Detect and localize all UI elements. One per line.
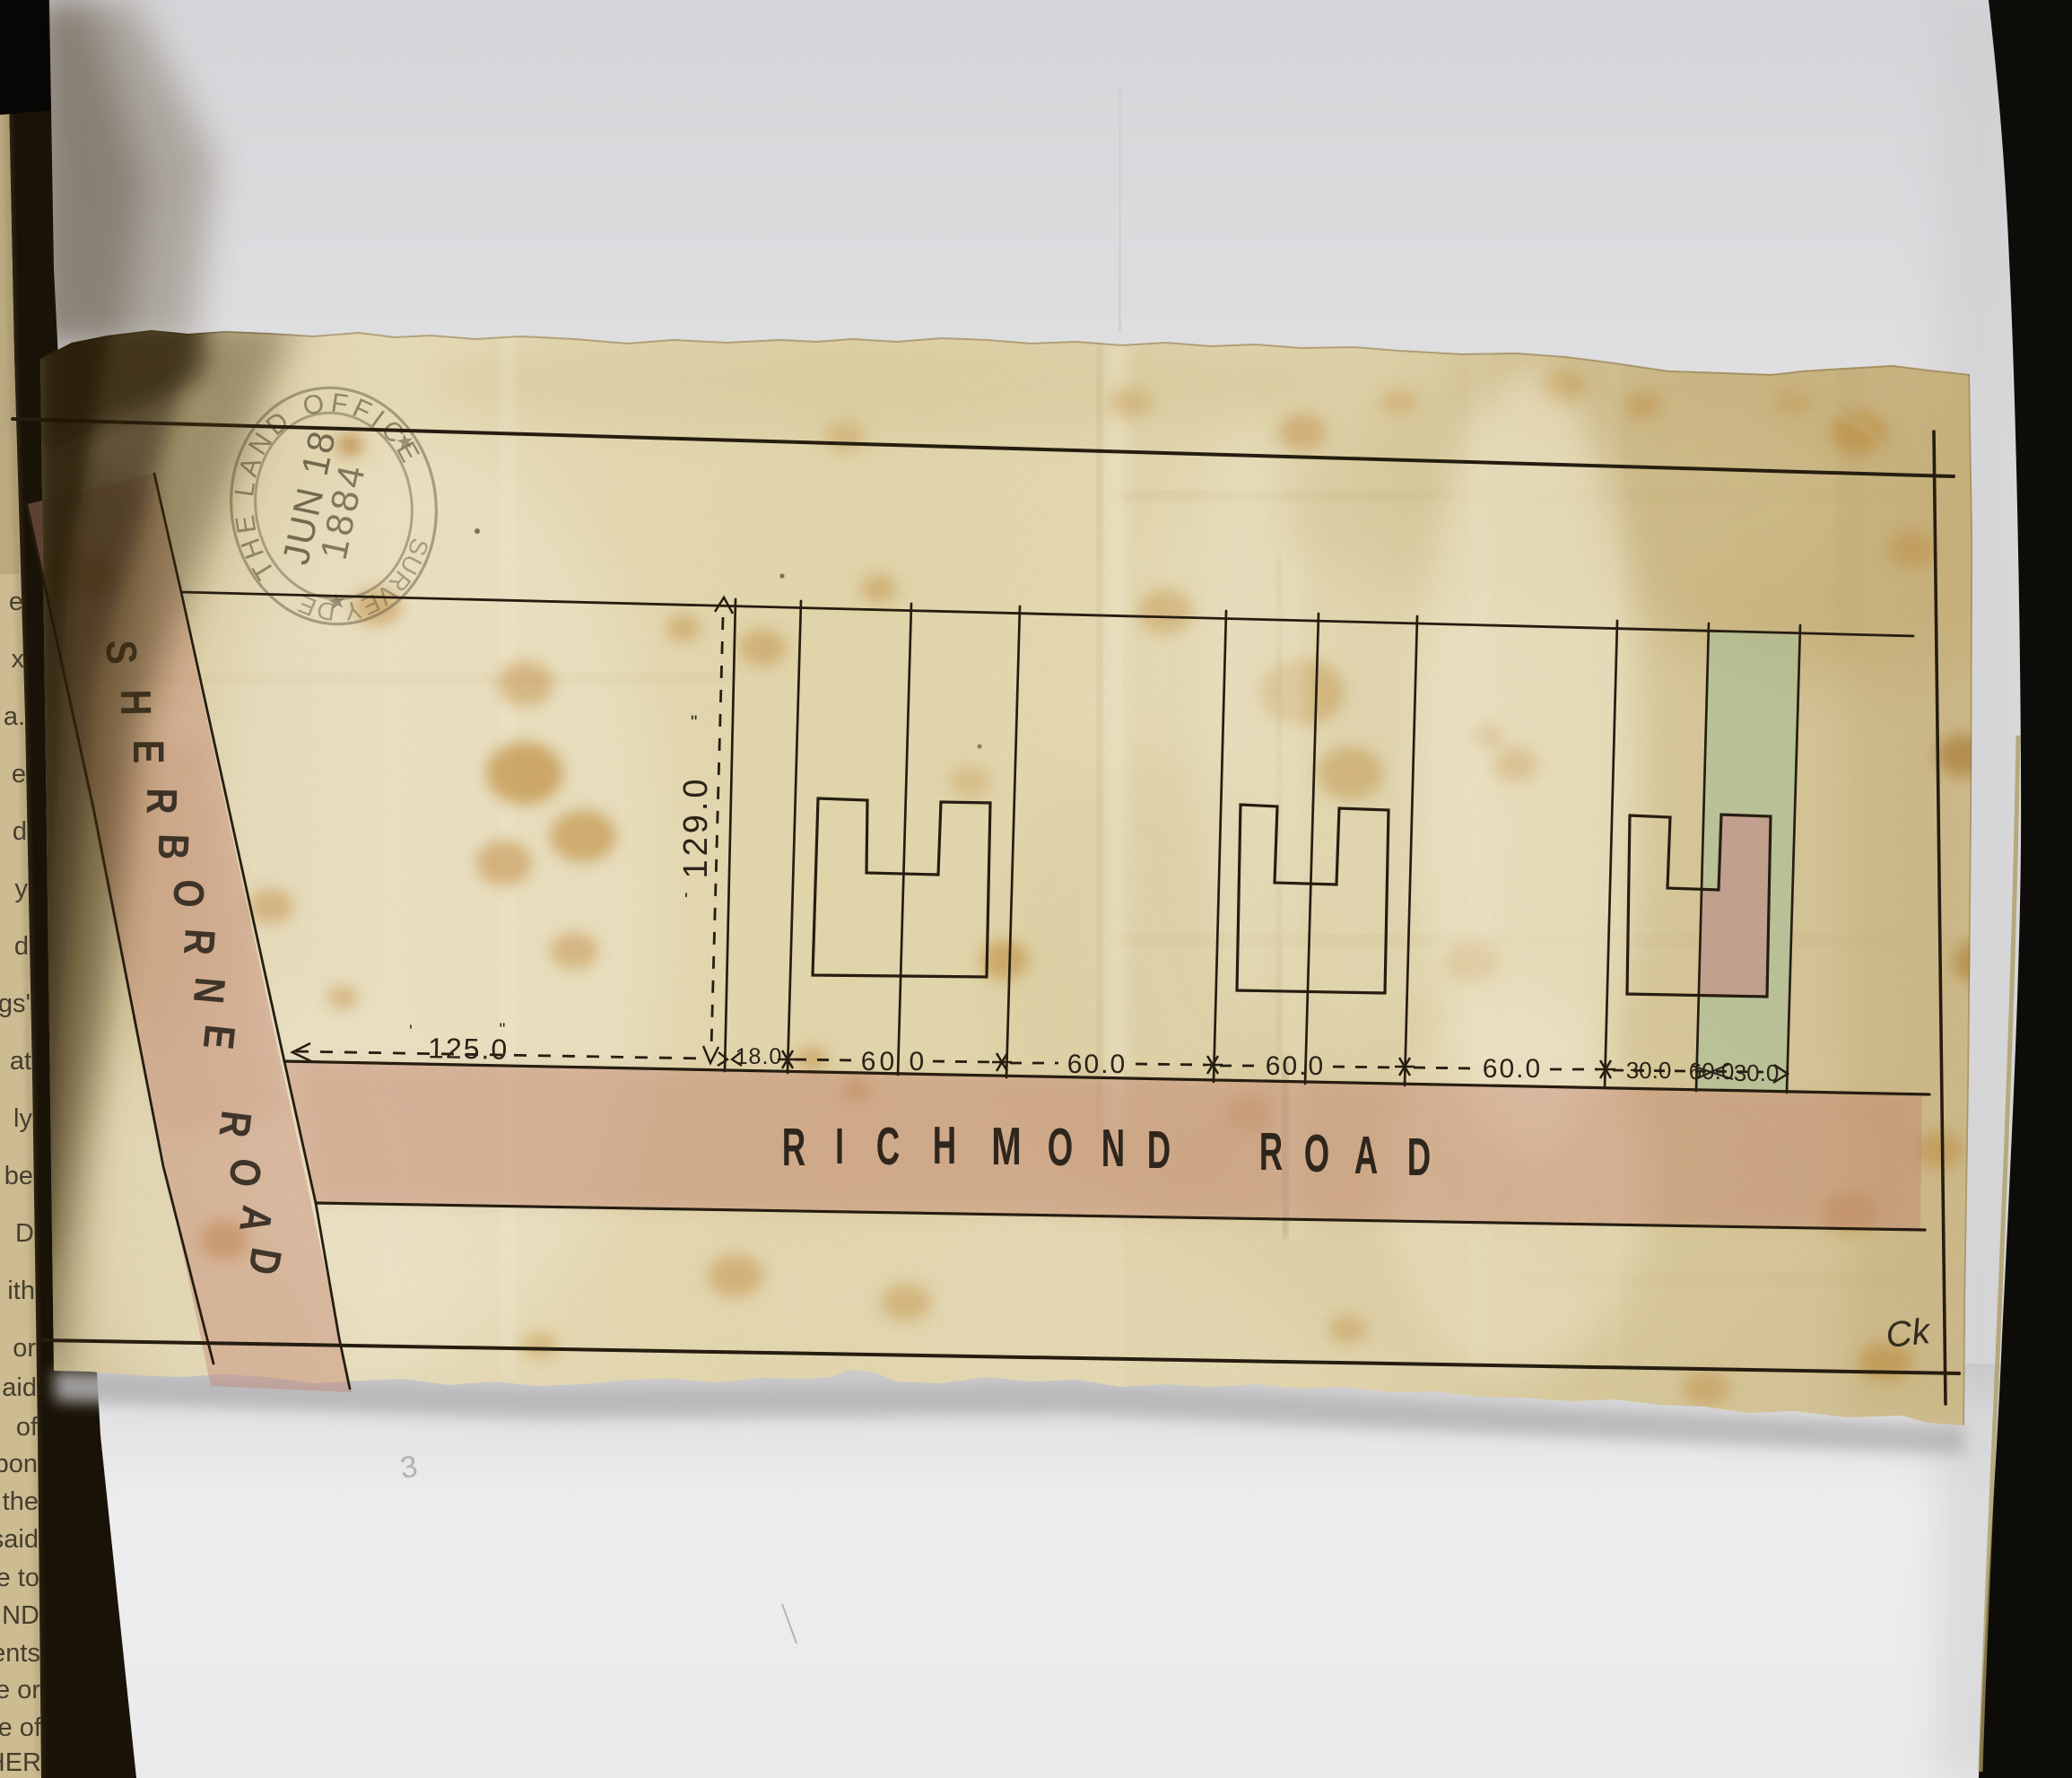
svg-text:O: O bbox=[1048, 1119, 1073, 1177]
svg-text:d: d bbox=[14, 932, 29, 961]
svg-text:the: the bbox=[3, 1487, 39, 1516]
svg-text:": " bbox=[500, 1021, 506, 1040]
svg-text:N: N bbox=[184, 975, 233, 1006]
svg-text:ith: ith bbox=[7, 1277, 35, 1305]
svg-text:60.0: 60.0 bbox=[1067, 1050, 1127, 1079]
svg-text:R: R bbox=[137, 788, 186, 815]
svg-text:125.0: 125.0 bbox=[428, 1032, 509, 1066]
svg-text:R: R bbox=[174, 928, 223, 957]
svg-text:M: M bbox=[991, 1116, 1021, 1176]
svg-text:O: O bbox=[1304, 1125, 1329, 1183]
svg-text:y: y bbox=[15, 875, 29, 903]
svg-text:ents: ents bbox=[0, 1639, 40, 1668]
svg-text:e or: e or bbox=[0, 1676, 40, 1704]
svg-text:of: of bbox=[16, 1413, 39, 1442]
svg-text:30.0: 30.0 bbox=[1626, 1057, 1672, 1084]
svg-text:x: x bbox=[12, 645, 25, 674]
svg-text:I: I bbox=[835, 1119, 844, 1176]
svg-text:': ' bbox=[684, 890, 688, 911]
svg-text:pon: pon bbox=[0, 1450, 38, 1478]
svg-text:R: R bbox=[1259, 1123, 1283, 1181]
svg-text:C: C bbox=[876, 1118, 900, 1176]
svg-text:60.0: 60.0 bbox=[1483, 1054, 1542, 1084]
svg-text:se of: se of bbox=[0, 1713, 42, 1742]
svg-text:60.0: 60.0 bbox=[1266, 1051, 1325, 1081]
svg-text:A: A bbox=[1354, 1127, 1378, 1185]
svg-text:O: O bbox=[163, 878, 213, 909]
svg-text:at: at bbox=[10, 1047, 31, 1076]
svg-text:H: H bbox=[933, 1117, 956, 1175]
svg-text:ND: ND bbox=[2, 1601, 39, 1630]
svg-text:N: N bbox=[1101, 1120, 1125, 1178]
svg-text:ly: ly bbox=[13, 1104, 32, 1133]
svg-text:e to: e to bbox=[0, 1564, 39, 1592]
svg-text:★: ★ bbox=[326, 588, 348, 615]
svg-text:★: ★ bbox=[394, 429, 416, 456]
svg-text:B: B bbox=[149, 833, 197, 861]
svg-text:30.0: 30.0 bbox=[1734, 1059, 1780, 1086]
svg-text:a.: a. bbox=[4, 702, 25, 731]
svg-text:d: d bbox=[13, 817, 27, 846]
svg-text:": " bbox=[691, 712, 697, 733]
svg-text:': ' bbox=[409, 1023, 413, 1042]
svg-text:aid: aid bbox=[2, 1373, 37, 1402]
svg-text:R: R bbox=[782, 1119, 805, 1177]
svg-text:said: said bbox=[0, 1525, 39, 1554]
svg-text:D: D bbox=[1147, 1121, 1171, 1180]
svg-text:60 0: 60 0 bbox=[861, 1047, 927, 1076]
svg-text:e: e bbox=[9, 588, 23, 616]
svg-text:e: e bbox=[12, 760, 26, 789]
svg-text:129.0: 129.0 bbox=[677, 775, 715, 878]
svg-text:E: E bbox=[194, 1023, 244, 1051]
svg-text:18.0: 18.0 bbox=[736, 1044, 783, 1069]
svg-text:Ck: Ck bbox=[1884, 1312, 1933, 1355]
svg-text:HER: HER bbox=[0, 1748, 41, 1777]
svg-text:D: D bbox=[1407, 1129, 1431, 1187]
svg-text:D: D bbox=[15, 1219, 34, 1248]
svg-text:or: or bbox=[13, 1334, 36, 1363]
svg-text:gs': gs' bbox=[0, 989, 30, 1018]
svg-text:be: be bbox=[4, 1162, 33, 1190]
